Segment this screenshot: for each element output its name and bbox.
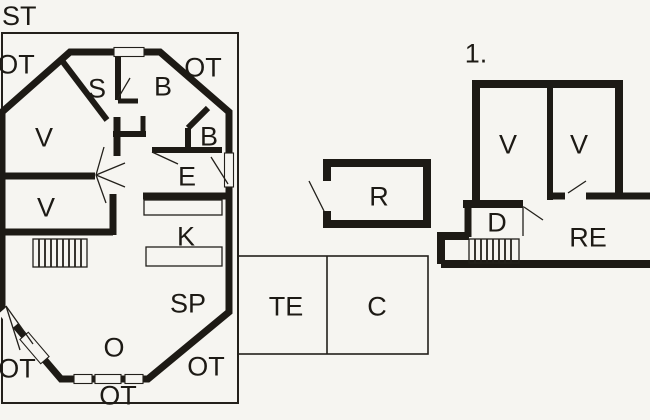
room-label-b-large: B [154,72,172,102]
first-floor-staircase [469,239,519,263]
room-label-v-right: V [570,130,588,160]
floor-plan-figure: ST OT OT S B B V V E K SP O OT OT OT R T… [0,0,650,420]
room-label-c: C [367,292,387,322]
room-label-ot-bottom-left: OT [0,354,36,384]
room-label-s: S [88,74,106,104]
room-label-ot-top-left: OT [0,50,35,80]
room-label-ot-top-right: OT [184,53,222,83]
ground-floor-title: ST [2,1,37,31]
terrace-carport [238,256,428,354]
room-label-ot-bottom-right: OT [187,352,225,382]
room-label-d: D [487,208,507,238]
first-floor-title: 1. [465,39,488,69]
room-label-o: O [103,333,124,363]
room-label-v-upper: V [35,123,53,153]
staircase [33,239,87,267]
ground-floor-plan: ST OT OT S B B V V E K SP O OT OT OT [0,1,238,411]
room-label-b-small: B [200,122,218,152]
room-label-re: RE [569,223,607,253]
room-label-sp: SP [170,289,206,319]
room-label-e: E [178,162,196,192]
room-label-v-lower: V [37,193,55,223]
room-label-k: K [177,222,195,252]
room-label-v-left: V [499,130,517,160]
room-label-r: R [369,182,389,212]
room-label-ot-bottom-center: OT [99,381,137,411]
first-floor-walls [437,80,650,264]
outbuildings: R TE C [238,163,428,354]
room-label-te: TE [269,292,304,322]
first-floor-plan: 1. [437,39,650,264]
